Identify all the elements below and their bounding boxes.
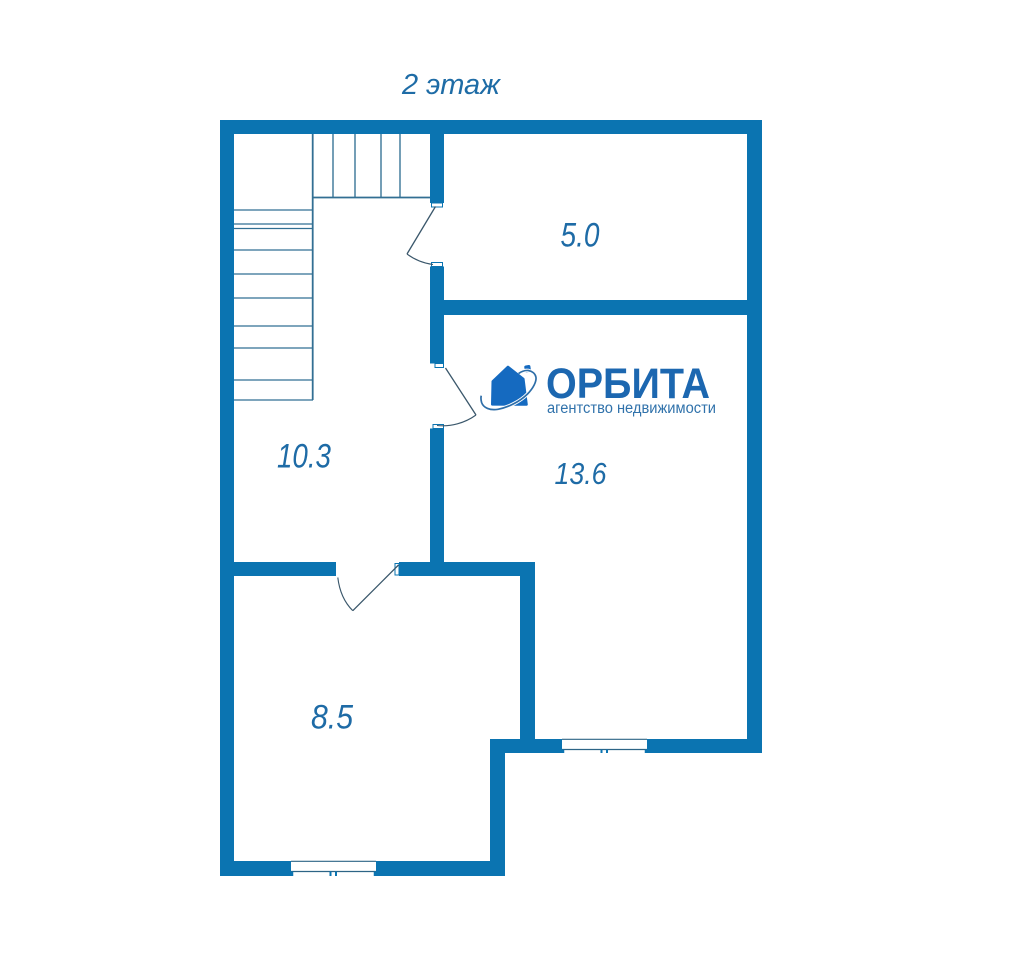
svg-text:10.3: 10.3	[277, 438, 331, 476]
svg-text:13.6: 13.6	[555, 456, 608, 491]
svg-text:2 этаж: 2 этаж	[401, 69, 501, 101]
svg-text:5.0: 5.0	[561, 217, 600, 255]
svg-text:агентство недвижимости: агентство недвижимости	[547, 400, 716, 417]
svg-text:8.5: 8.5	[311, 699, 353, 737]
